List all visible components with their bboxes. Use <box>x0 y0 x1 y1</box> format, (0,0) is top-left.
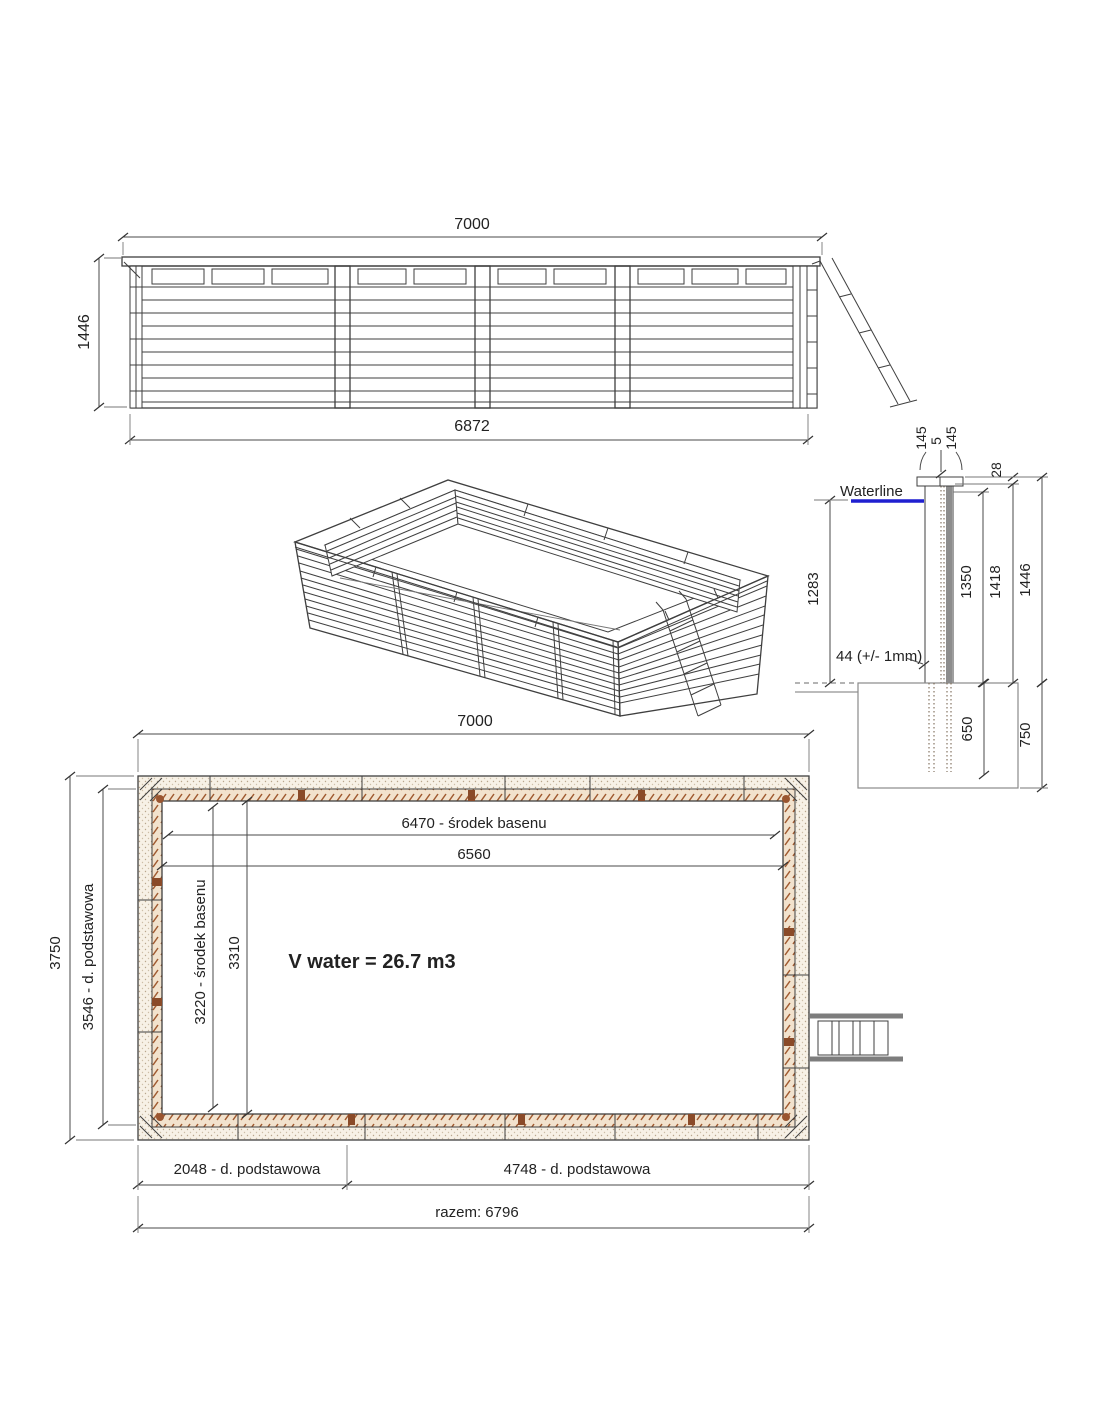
dim-base-right: 4748 - d. podstawowa <box>504 1161 651 1178</box>
dim-post-embed: 650 <box>959 716 976 741</box>
elevation-right-post <box>793 266 817 408</box>
section-dim-750: 750 <box>1017 679 1048 792</box>
section-plank-note: 44 (+/- 1mm) <box>836 648 929 669</box>
buried-post-dotted <box>929 683 951 772</box>
plan-ladder <box>809 1016 903 1059</box>
isometric-view <box>295 480 768 716</box>
elevation-view: 7000 1446 6872 <box>76 216 917 445</box>
plank-note-label: 44 (+/- 1mm) <box>836 648 922 665</box>
dim-wall-total: 1446 <box>1017 563 1034 596</box>
dim-cap-left: 145 <box>913 426 929 450</box>
iso-long-wall-planks <box>296 549 620 710</box>
elevation-top-slots <box>152 269 786 284</box>
elevation-dim-left-label: 1446 <box>76 314 93 350</box>
plan-dim-total: razem: 6796 <box>133 1196 814 1233</box>
section-liner-strip <box>946 486 952 683</box>
plan-dim-top-label: 7000 <box>457 713 493 730</box>
section-dim-650: 650 <box>959 679 989 779</box>
dim-cap-gap: 5 <box>928 437 944 445</box>
elevation-dim-bottom: 6872 <box>125 414 813 445</box>
iso-rim <box>295 480 768 647</box>
dim-inner-length: 6560 <box>457 846 490 863</box>
section-dim-1350: 1350 <box>953 488 989 687</box>
dim-height-base: 3546 - d. podstawowa <box>80 883 97 1030</box>
dim-height-outer: 3750 <box>47 936 64 969</box>
dim-inner-center-width: 3220 - środek basenu <box>192 879 209 1024</box>
dim-cap-right: 145 <box>943 426 959 450</box>
elevation-dim-left: 1446 <box>76 254 127 411</box>
footing-outline <box>858 683 1018 788</box>
drawing-svg: 7000 1446 6872 <box>0 0 1100 1422</box>
section-view: Waterline 145 5 145 1283 44 (+/- <box>795 426 1048 792</box>
pool-technical-drawing: 7000 1446 6872 <box>0 0 1100 1422</box>
volume-label: V water = 26.7 m3 <box>288 951 455 973</box>
dim-wall-boards: 1350 <box>958 565 975 598</box>
dim-inner-center-length: 6470 - środek basenu <box>401 815 546 832</box>
elevation-ladder <box>812 258 917 407</box>
plan-view: 6470 - środek basenu 6560 3220 - środek … <box>47 713 903 1233</box>
dim-cap-rise: 28 <box>988 462 1004 478</box>
plan-dim-base: 2048 - d. podstawowa 4748 - d. podstawow… <box>133 1145 814 1190</box>
section-waterline-label: Waterline <box>840 483 903 500</box>
elevation-left-post <box>124 262 142 408</box>
dim-water-depth: 1283 <box>805 572 822 605</box>
plan-dim-3546: 3546 - d. podstawowa <box>80 785 136 1129</box>
elevation-top-cap <box>122 257 820 266</box>
dim-wall-under-cap: 1418 <box>987 565 1004 598</box>
elevation-plank-lines <box>142 287 793 402</box>
dim-base-left: 2048 - d. podstawowa <box>174 1161 321 1178</box>
elevation-dim-bottom-label: 6872 <box>454 418 490 435</box>
dim-inner-width: 3310 <box>226 936 243 969</box>
dim-footing-depth: 750 <box>1017 722 1034 747</box>
section-dim-1446: 1446 <box>965 473 1048 687</box>
elevation-dim-top: 7000 <box>118 216 827 255</box>
elevation-dim-top-label: 7000 <box>454 216 490 233</box>
plan-dim-top: 7000 <box>133 713 814 772</box>
section-dim-28: 28 <box>988 462 1018 481</box>
section-cap-dims: 145 5 145 <box>913 426 962 478</box>
dim-total: razem: 6796 <box>435 1204 518 1221</box>
